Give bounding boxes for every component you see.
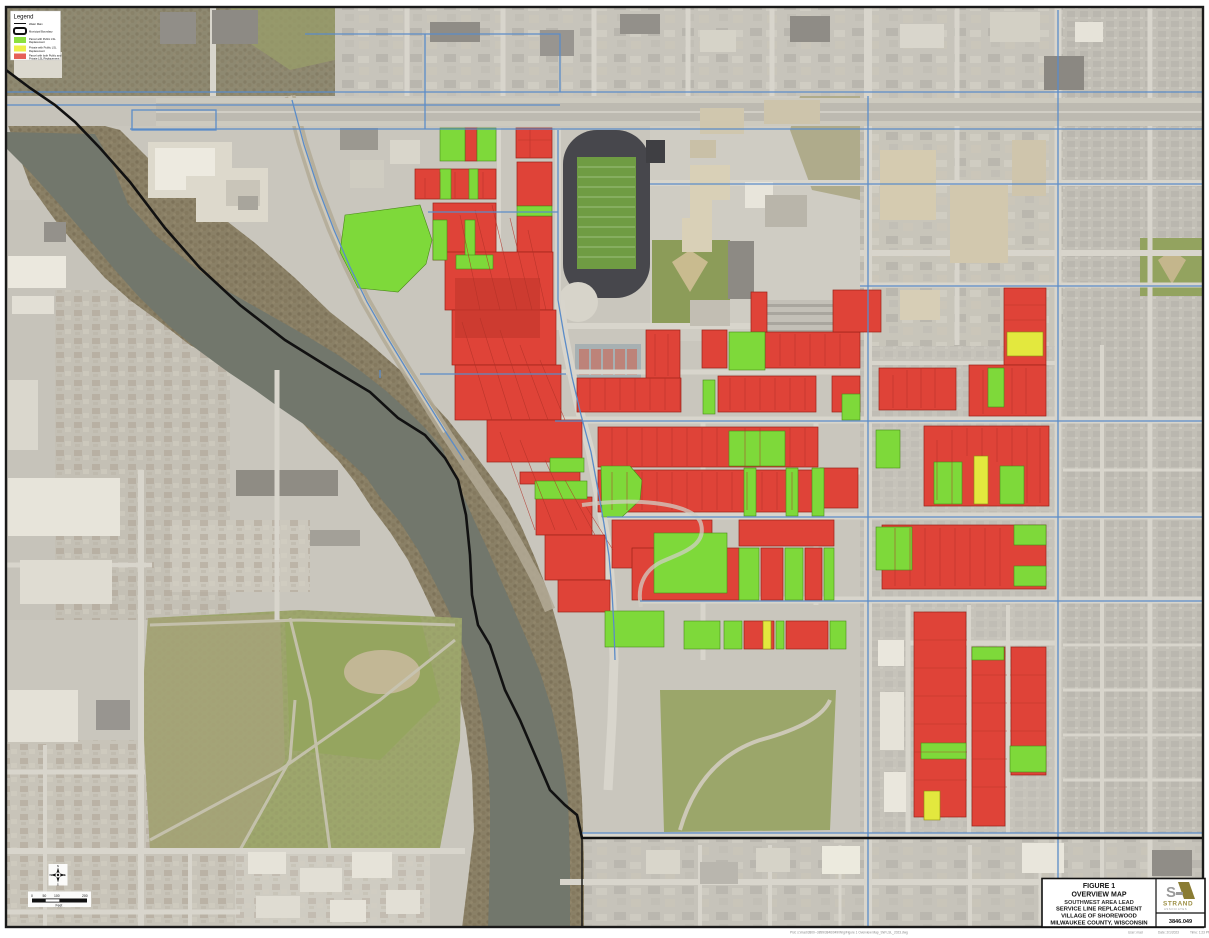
svg-text:Private LSL Replacement: Private LSL Replacement: [29, 57, 60, 61]
svg-text:Replacement: Replacement: [29, 49, 45, 53]
svg-text:Date: 2/1/2023: Date: 2/1/2023: [1158, 931, 1179, 935]
svg-text:Private with Public LSL: Private with Public LSL: [29, 45, 57, 49]
svg-text:Replacement: Replacement: [29, 40, 45, 44]
svg-text:Time: 1:23 PM: Time: 1:23 PM: [1190, 931, 1209, 935]
svg-text:S: S: [57, 883, 59, 887]
svg-text:MILWAUKEE COUNTY, WISCONSIN: MILWAUKEE COUNTY, WISCONSIN: [1050, 921, 1147, 927]
svg-text:3846.049: 3846.049: [1169, 919, 1192, 925]
svg-text:50: 50: [43, 894, 47, 898]
svg-text:0: 0: [31, 894, 33, 898]
svg-text:200: 200: [82, 894, 88, 898]
svg-text:Municipal Boundary: Municipal Boundary: [29, 29, 53, 33]
svg-text:Feet: Feet: [56, 904, 63, 908]
svg-text:W: W: [49, 873, 52, 877]
svg-text:SOUTHWEST AREA LEAD: SOUTHWEST AREA LEAD: [1064, 900, 1134, 906]
svg-text:S: S: [1166, 884, 1176, 901]
svg-text:N: N: [57, 864, 59, 868]
svg-text:Legend: Legend: [14, 15, 34, 21]
svg-text:OVERVIEW MAP: OVERVIEW MAP: [1071, 892, 1126, 899]
svg-text:SERVICE LINE REPLACEMENT: SERVICE LINE REPLACEMENT: [1056, 907, 1142, 913]
svg-text:Parcel with Public LSL: Parcel with Public LSL: [29, 37, 56, 41]
svg-text:100: 100: [54, 894, 60, 898]
svg-text:Plot: s:\mad\3800--3899\3846\0: Plot: s:\mad\3800--3899\3846\049\Wrg\Fig…: [790, 931, 908, 935]
svg-text:Water Main: Water Main: [29, 22, 43, 26]
svg-text:FIGURE 1: FIGURE 1: [1083, 883, 1115, 890]
svg-text:VILLAGE OF SHOREWOOD: VILLAGE OF SHOREWOOD: [1061, 914, 1137, 920]
svg-text:E: E: [64, 873, 66, 877]
svg-text:ASSOCIATES: ASSOCIATES: [1164, 907, 1187, 911]
svg-text:User: mad: User: mad: [1128, 931, 1143, 935]
